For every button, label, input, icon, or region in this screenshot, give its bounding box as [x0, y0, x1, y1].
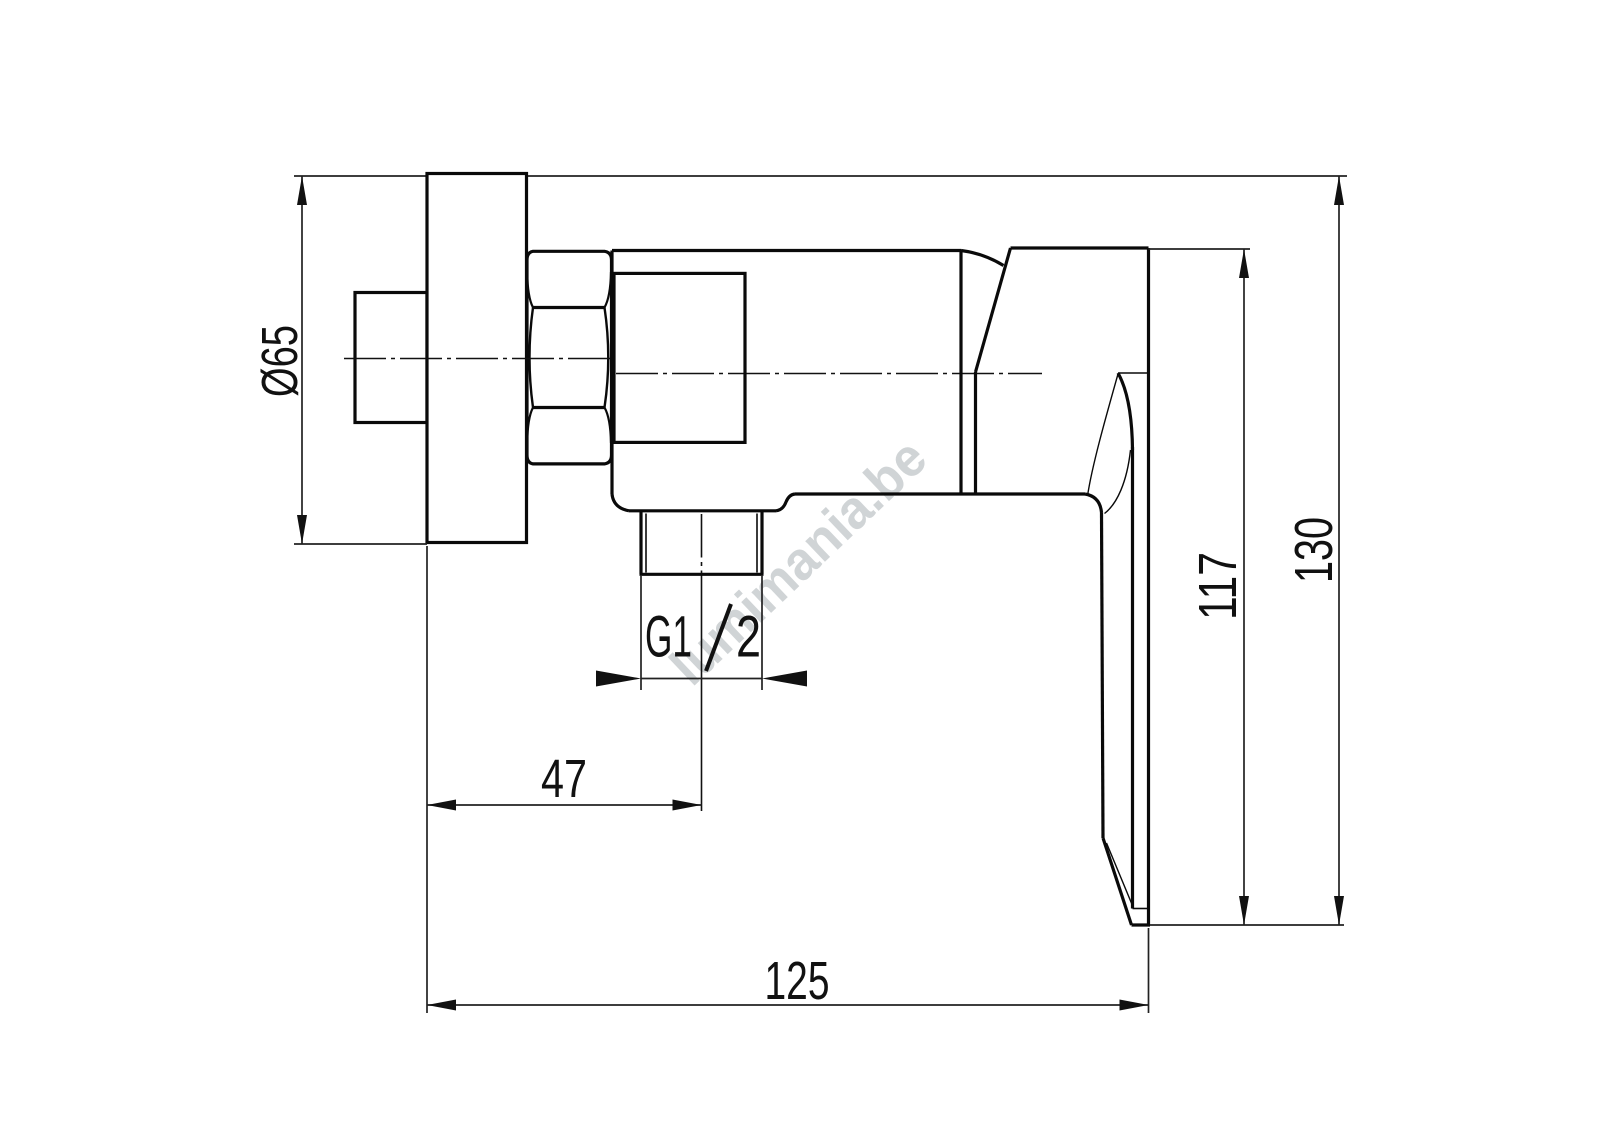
svg-text:2: 2 — [736, 605, 761, 670]
svg-text:125: 125 — [765, 952, 830, 1011]
svg-text:47: 47 — [541, 750, 587, 809]
svg-text:130: 130 — [1285, 517, 1344, 583]
svg-text:G1: G1 — [645, 605, 692, 670]
svg-text:117: 117 — [1189, 552, 1248, 620]
svg-text:Ø65: Ø65 — [251, 325, 308, 397]
